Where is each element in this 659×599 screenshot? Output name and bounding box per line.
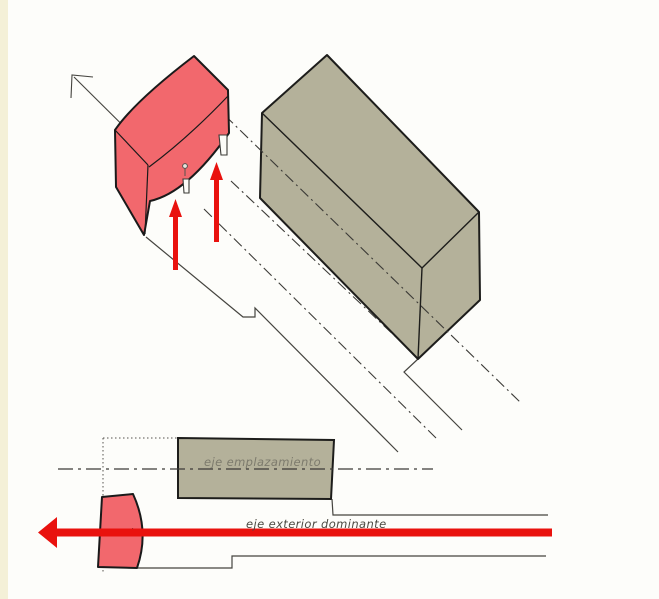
canopy-leg-left xyxy=(183,179,189,193)
canopy-leg-right xyxy=(219,135,227,155)
dominant-axis-label: eje exterior dominante xyxy=(246,517,387,531)
scanned-diagram-page: eje emplazamiento eje exterior dominante xyxy=(0,0,659,599)
axonometric-plan-diagram: eje emplazamiento eje exterior dominante xyxy=(0,0,659,599)
page-edge-strip xyxy=(0,0,8,599)
site-axis-label: eje emplazamiento xyxy=(204,455,321,469)
canopy-knob-icon xyxy=(183,164,188,169)
